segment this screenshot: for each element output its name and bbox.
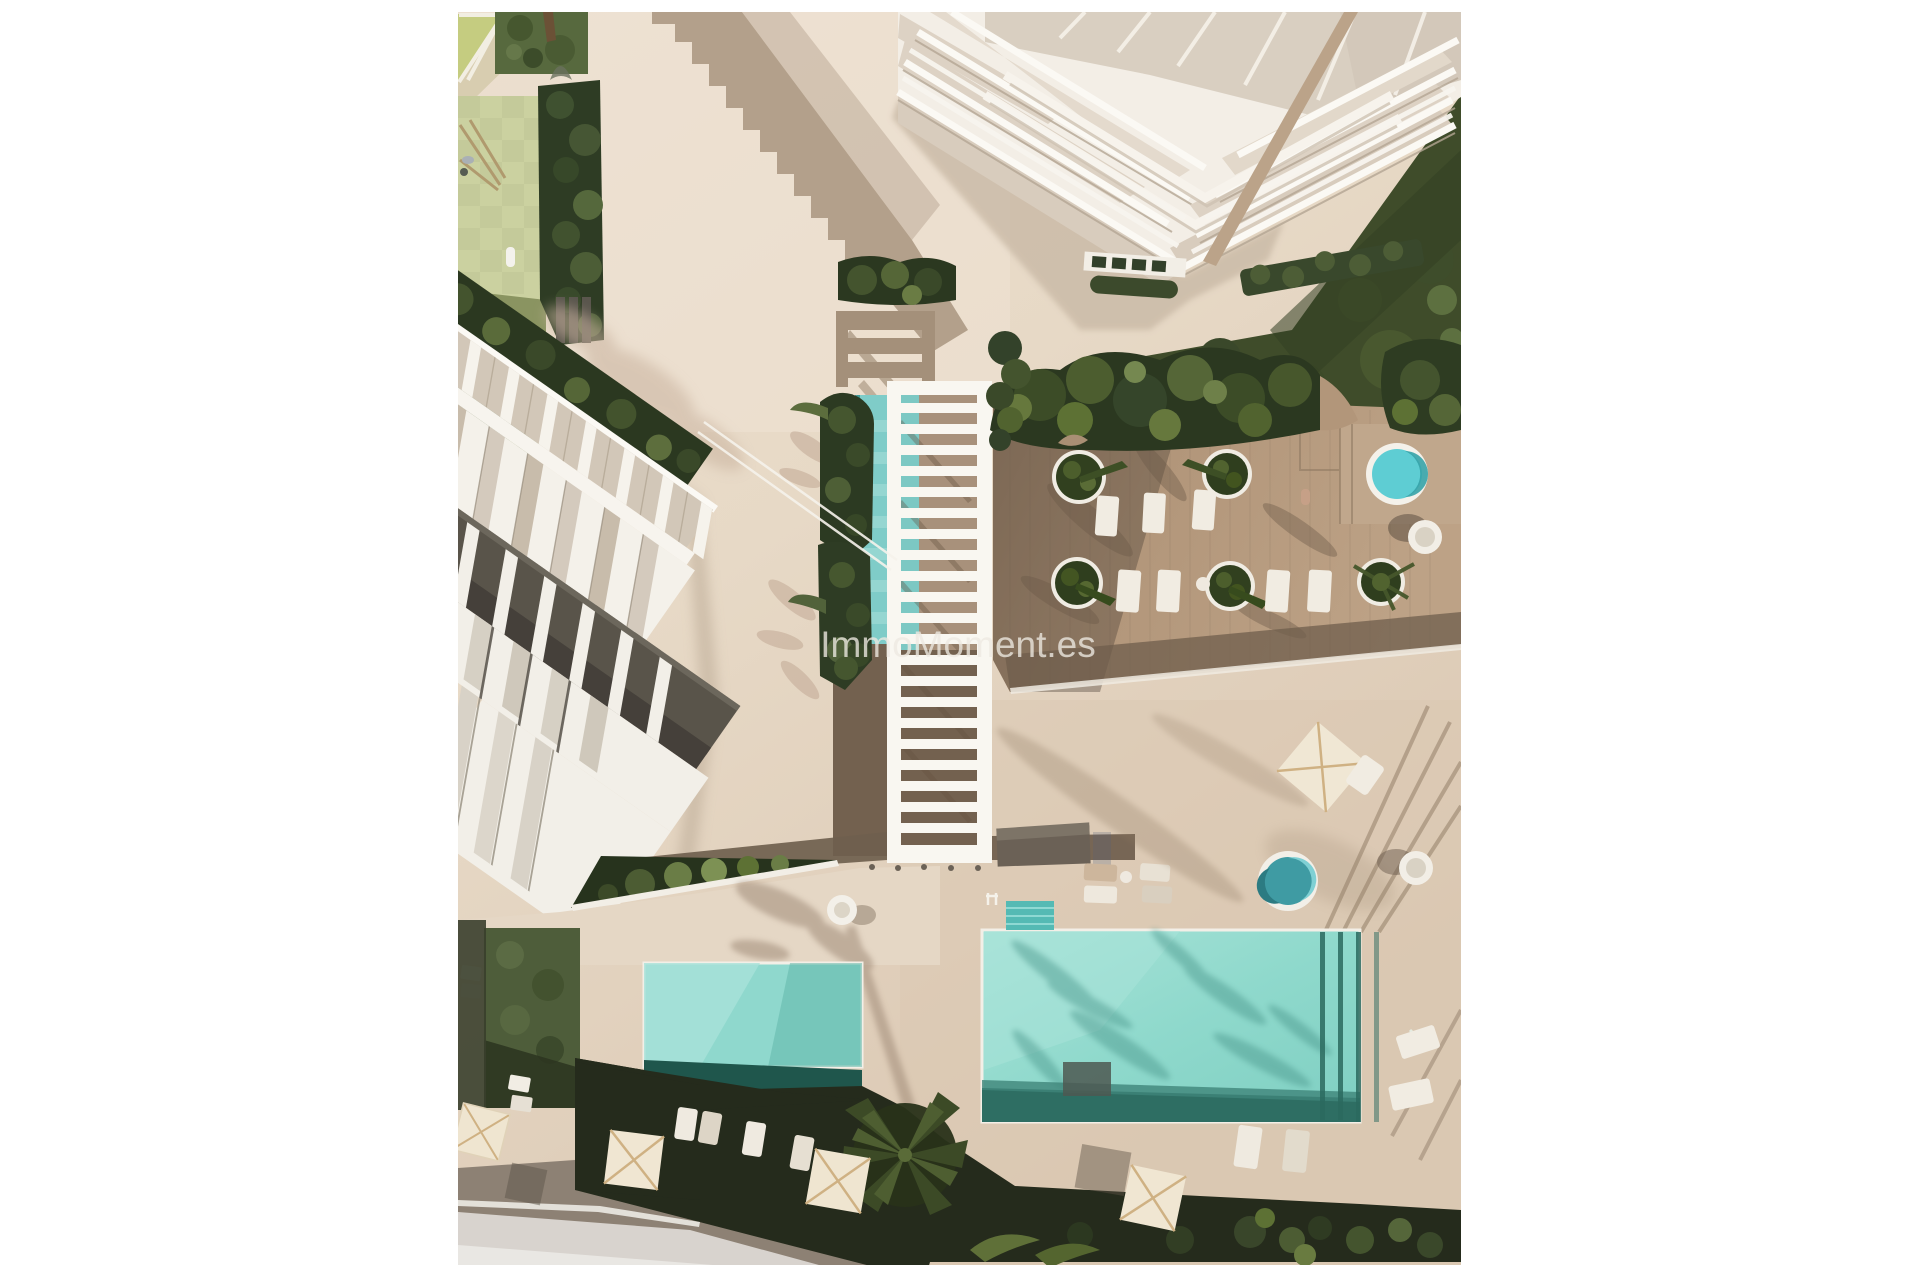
- svg-text:ImmoMoment.es: ImmoMoment.es: [820, 624, 1096, 665]
